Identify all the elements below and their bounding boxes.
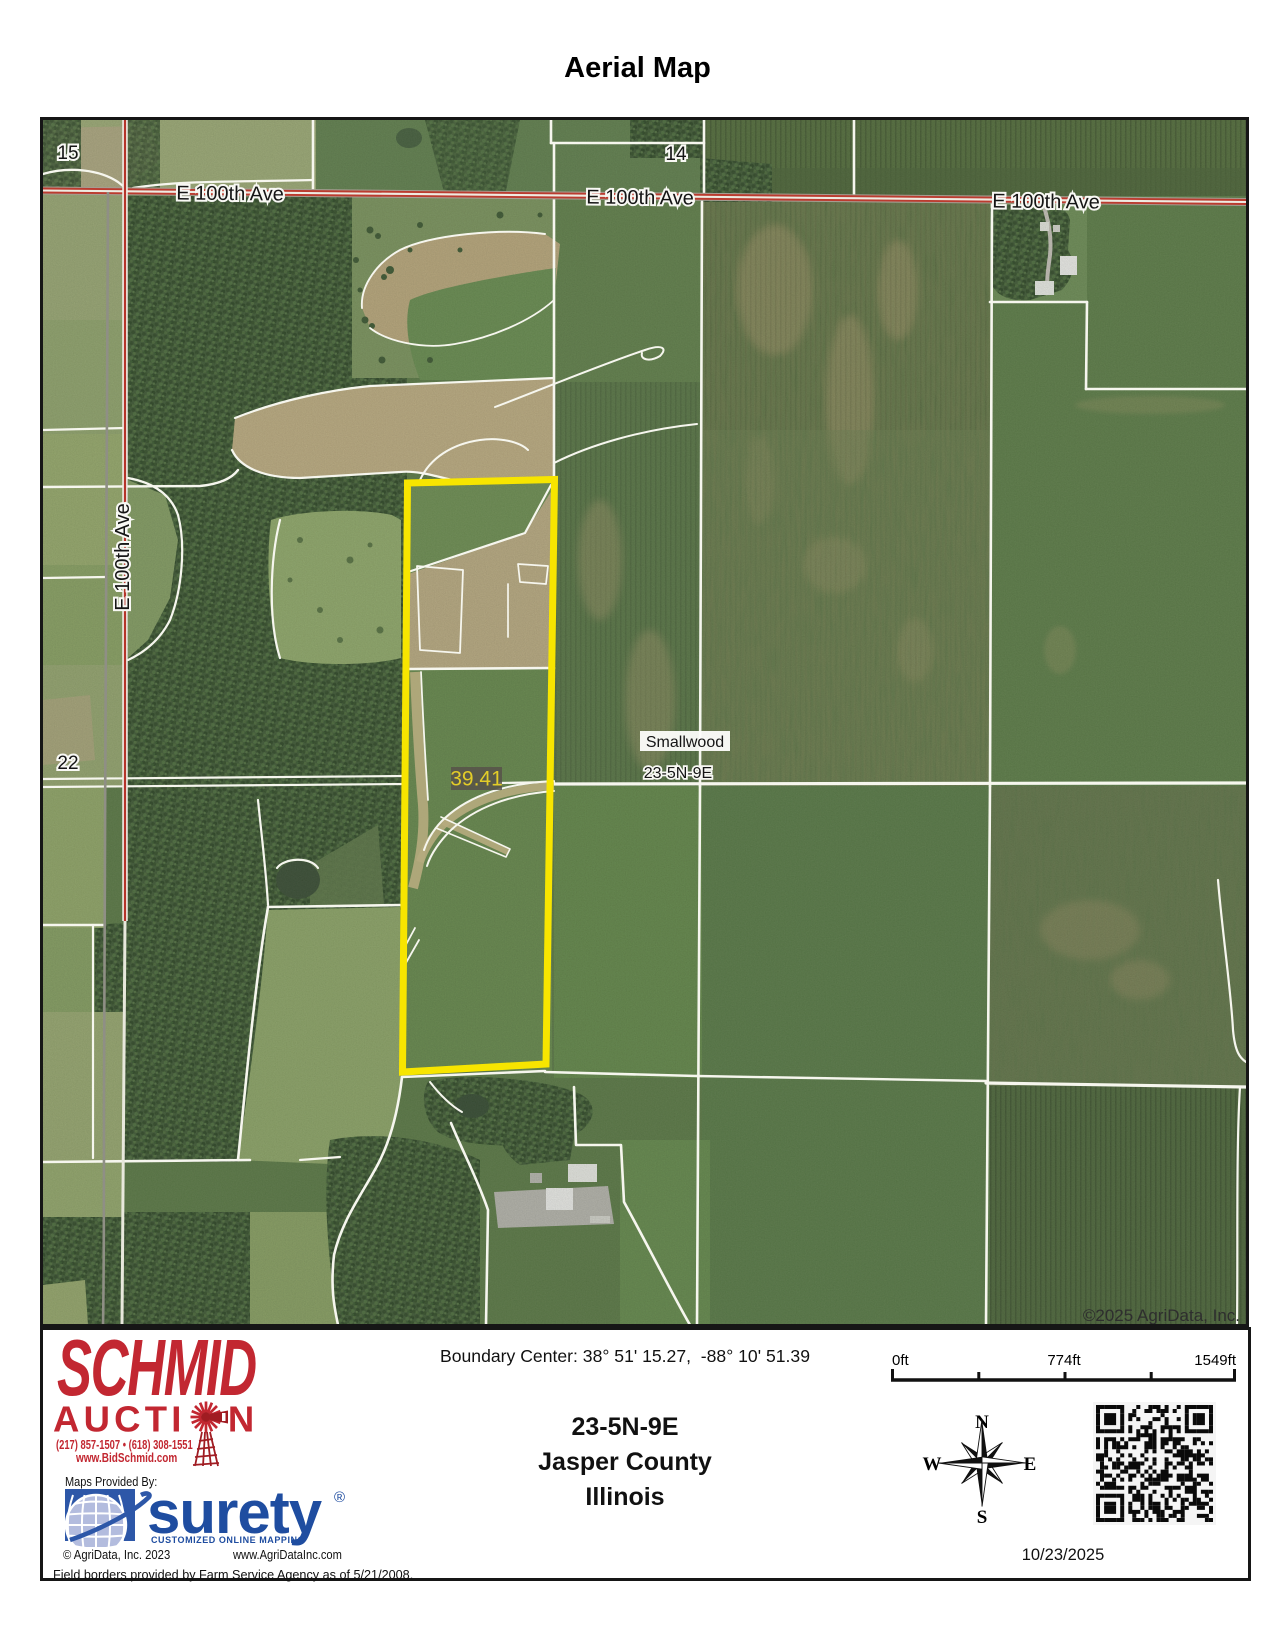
svg-text:E 100th Ave: E 100th Ave — [586, 186, 694, 209]
svg-text:®: ® — [334, 1489, 345, 1506]
svg-text:15: 15 — [57, 143, 78, 164]
svg-text:23-5N-9E: 23-5N-9E — [644, 765, 712, 782]
svg-text:S: S — [977, 1507, 988, 1524]
svg-text:W: W — [923, 1454, 942, 1475]
svg-text:39.41: 39.41 — [450, 768, 503, 791]
svg-text:22: 22 — [57, 753, 78, 774]
svg-text:14: 14 — [665, 144, 687, 165]
svg-text:E 100th Ave: E 100th Ave — [176, 182, 284, 205]
svg-text:E 100th Ave: E 100th Ave — [112, 503, 134, 611]
svg-text:E: E — [1024, 1454, 1037, 1475]
svg-text:Smallwood: Smallwood — [646, 734, 724, 751]
svg-text:©2025 AgriData, Inc.: ©2025 AgriData, Inc. — [1083, 1306, 1240, 1324]
svg-text:CUSTOMIZED ONLINE MAPPING: CUSTOMIZED ONLINE MAPPING — [151, 1535, 305, 1545]
svg-text:E 100th Ave: E 100th Ave — [992, 190, 1100, 213]
